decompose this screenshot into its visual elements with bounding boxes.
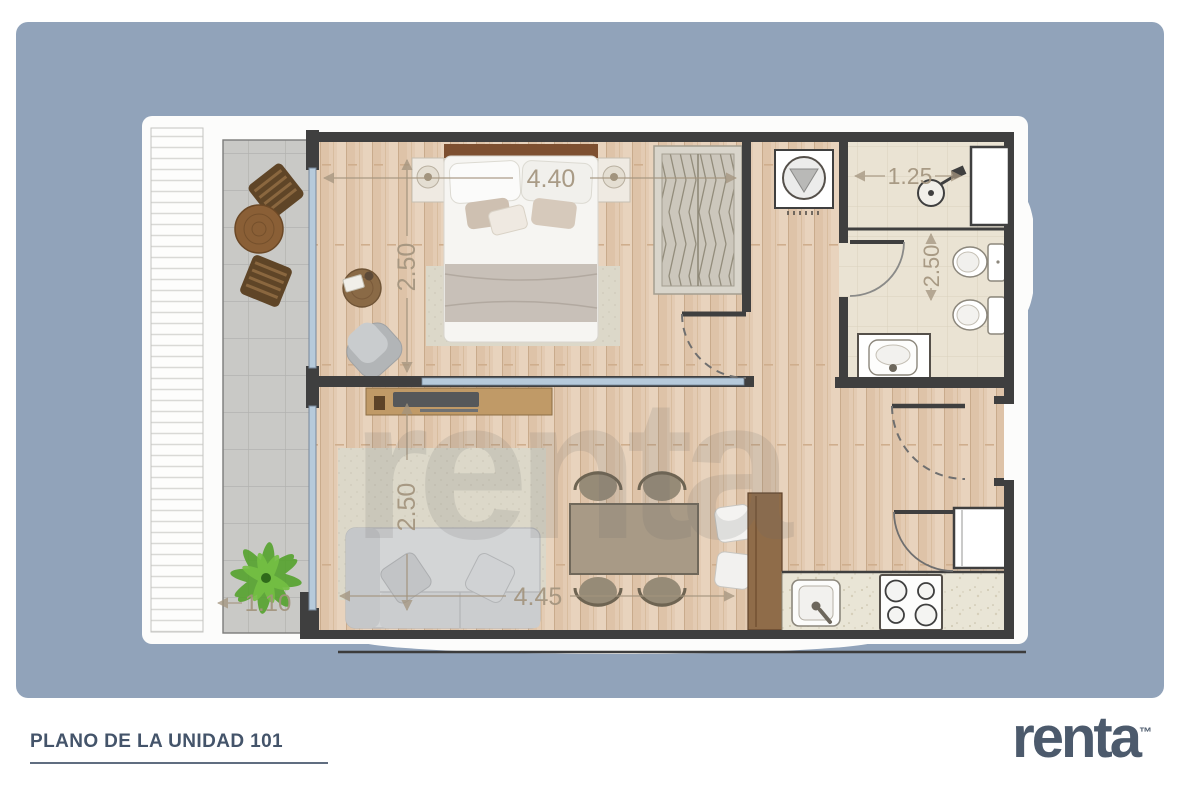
svg-text:4.45: 4.45 (514, 583, 563, 611)
bidet (953, 297, 1005, 334)
page: 1.10 (0, 0, 1180, 788)
fridge (954, 508, 1006, 568)
nightstand-left (412, 158, 444, 202)
utility-closet (971, 147, 1009, 225)
renta-logo-text: renta (1012, 705, 1139, 770)
bathroom-sink (858, 334, 930, 380)
renta-logo: renta™ (1012, 708, 1152, 769)
svg-text:4.40: 4.40 (527, 165, 576, 193)
nightstand-right (598, 158, 630, 202)
watermark: renta (351, 358, 794, 581)
wardrobe (654, 146, 742, 294)
kitchen-sink (792, 580, 840, 626)
stove (880, 575, 942, 630)
svg-text:1.25: 1.25 (888, 163, 933, 189)
toilet (953, 244, 1005, 281)
title-underline (30, 762, 328, 764)
balcony: 1.10 (151, 128, 316, 633)
page-title: PLANO DE LA UNIDAD 101 (30, 731, 283, 753)
washing-machine-icon (775, 150, 833, 215)
balcony-table (235, 205, 283, 253)
svg-text:2.50: 2.50 (393, 243, 421, 292)
louver-deck (151, 128, 203, 632)
side-table (343, 269, 381, 307)
trademark-symbol: ™ (1139, 725, 1152, 740)
svg-text:1.10: 1.10 (245, 590, 292, 617)
svg-text:2.50: 2.50 (919, 245, 944, 288)
floor-plan: 1.10 (138, 116, 1033, 661)
